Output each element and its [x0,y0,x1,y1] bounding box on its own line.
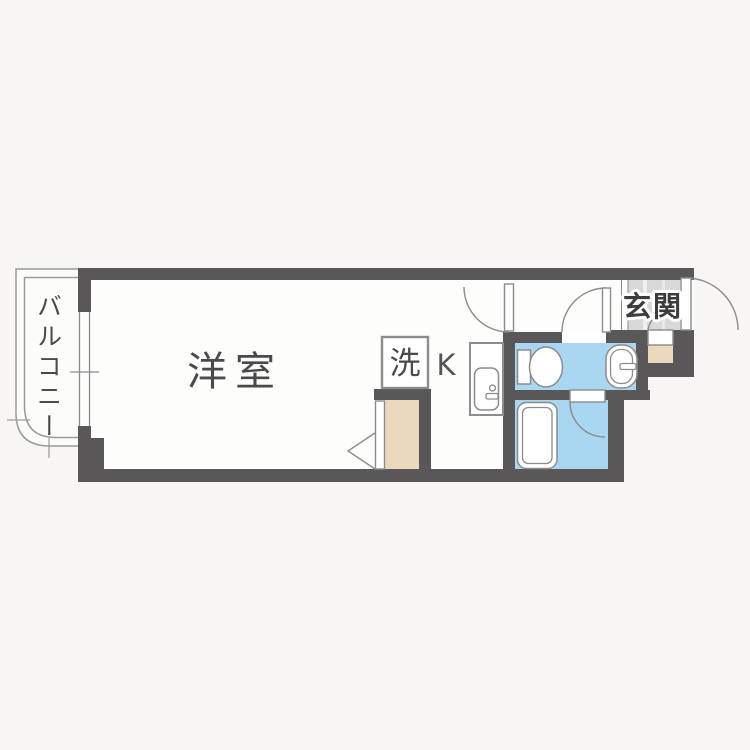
entrance-inner-door-leaf [648,330,673,345]
toilet-bowl-icon [530,347,563,387]
wall-closet-right [419,400,431,469]
wall-washroom-bath-right [605,390,650,400]
wall-entrance-bottom [636,363,694,377]
bathtub-inner-icon [523,408,553,464]
wall-closet-top [374,389,431,400]
kitchen-faucet-base [486,394,498,400]
washroom-doorway-gap [562,331,606,343]
closet-fill [385,400,419,469]
kitchen-door-leaf [505,284,514,331]
wall-washroom-bath-left [503,390,571,400]
washbasin-faucet-icon [620,364,636,370]
label-kitchen: K [436,348,456,382]
kitchen-faucet-knob [490,385,496,391]
bathroom-door-leaf [570,390,605,402]
washroom-door-leaf [603,288,611,332]
toilet-tank-icon [518,350,531,384]
label-laundry: 洗 [390,346,421,382]
label-entrance: 玄関 [623,290,683,323]
wall-top [78,268,694,280]
wall-bathroom-right [608,400,624,482]
wall-left-lower [78,426,91,469]
floor-plan-drawing: 洋室 バルコニー 玄関 洗 K [0,0,750,750]
label-main-room: 洋室 [187,349,283,395]
wall-hall-bottom-right [606,330,650,343]
floor-plan-page: 洋室 バルコニー 玄関 洗 K [0,0,750,750]
label-balcony: バルコニー [34,293,63,443]
wall-kitchen-bath-divider [503,332,515,469]
closet-panel [376,401,385,469]
wall-hall-bottom-left [503,332,562,343]
wall-left-upper [78,280,91,312]
wall-bottom [78,469,624,482]
wall-left-step [91,438,104,469]
